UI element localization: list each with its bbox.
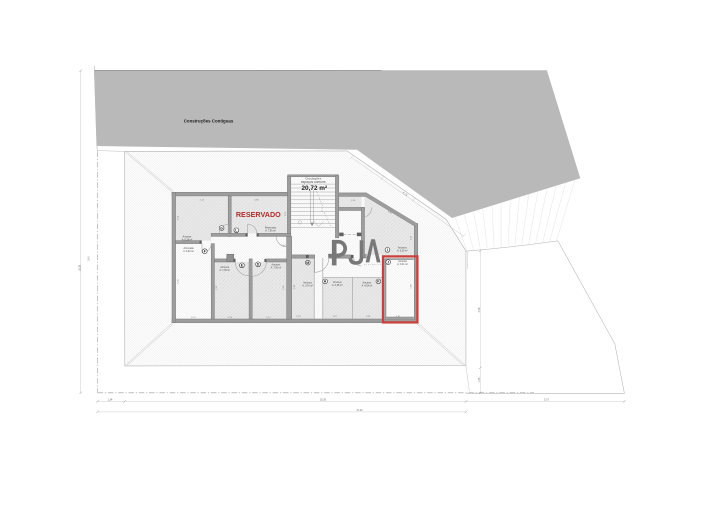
svg-text:27,42: 27,42 xyxy=(357,409,364,412)
svg-text:20,72 m²: 20,72 m² xyxy=(302,185,328,192)
svg-text:p j a r q u i t e c t o s: p j a r q u i t e c t o s xyxy=(364,263,390,266)
svg-text:L: L xyxy=(235,229,237,233)
svg-text:1,45: 1,45 xyxy=(478,377,481,382)
svg-text:Arrumos: Arrumos xyxy=(183,236,193,239)
svg-text:16,35: 16,35 xyxy=(78,264,81,271)
svg-text:4,46: 4,46 xyxy=(478,307,481,312)
svg-text:A: 4,38 m²: A: 4,38 m² xyxy=(332,284,343,287)
svg-text:Arrumos: Arrumos xyxy=(398,260,408,263)
svg-text:A: 3,76 m²: A: 3,76 m² xyxy=(302,285,313,288)
svg-text:5,73: 5,73 xyxy=(544,398,549,401)
svg-text:A: 5,23 m²: A: 5,23 m² xyxy=(397,249,408,252)
svg-text:Arrumos: Arrumos xyxy=(303,282,313,285)
svg-text:A: 3,20 m²: A: 3,20 m² xyxy=(183,250,194,253)
svg-text:Arrumos: Arrumos xyxy=(333,281,343,284)
svg-text:A: 8,18 m²: A: 8,18 m² xyxy=(182,239,193,242)
svg-text:A: 7,56 m²: A: 7,56 m² xyxy=(271,267,282,270)
svg-text:Arrumada: Arrumada xyxy=(183,247,194,250)
svg-text:A: 3,21 m²: A: 3,21 m² xyxy=(397,263,408,266)
svg-text:1,34: 1,34 xyxy=(108,398,113,401)
svg-text:RESERVADO: RESERVADO xyxy=(236,210,281,219)
svg-text:Arrumos: Arrumos xyxy=(363,282,373,285)
svg-text:G: G xyxy=(220,226,223,230)
svg-text:3,41: 3,41 xyxy=(88,256,91,261)
svg-text:M: M xyxy=(306,261,309,265)
svg-text:Arrumos: Arrumos xyxy=(398,246,408,249)
svg-text:A: 7,56 m²: A: 7,56 m² xyxy=(265,230,276,233)
svg-text:Arrumos: Arrumos xyxy=(272,264,282,267)
svg-text:I: I xyxy=(387,248,388,252)
svg-text:F: F xyxy=(204,250,206,254)
svg-text:A: 7,36 m²: A: 7,36 m² xyxy=(219,269,230,272)
svg-text:A: 4,54 m²: A: 4,54 m² xyxy=(362,285,373,288)
svg-text:20,35: 20,35 xyxy=(320,398,327,401)
svg-text:Reservado: Reservado xyxy=(265,227,277,230)
svg-text:Construções Contíguas: Construções Contíguas xyxy=(184,119,234,124)
svg-text:Arrumos: Arrumos xyxy=(220,266,230,269)
svg-text:espaços comuns: espaços comuns xyxy=(301,180,326,184)
